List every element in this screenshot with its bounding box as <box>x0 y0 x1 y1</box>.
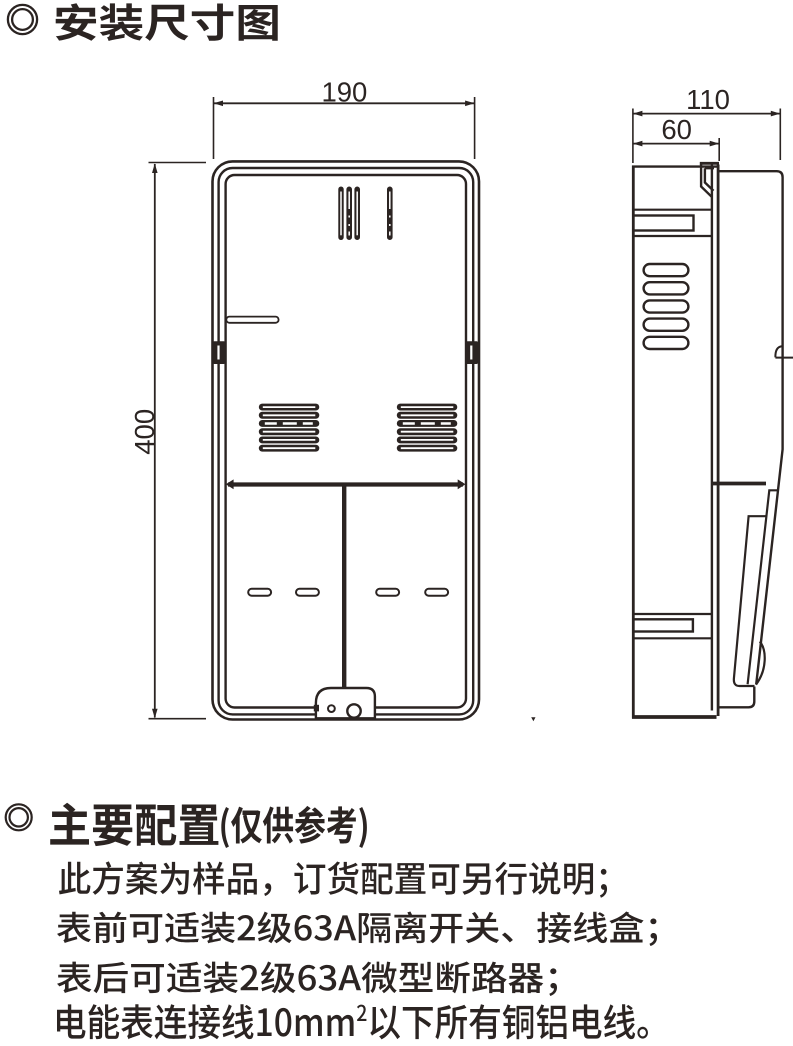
svg-text:110: 110 <box>686 84 730 115</box>
svg-text:400: 400 <box>129 409 160 455</box>
svg-text:60: 60 <box>661 114 692 145</box>
